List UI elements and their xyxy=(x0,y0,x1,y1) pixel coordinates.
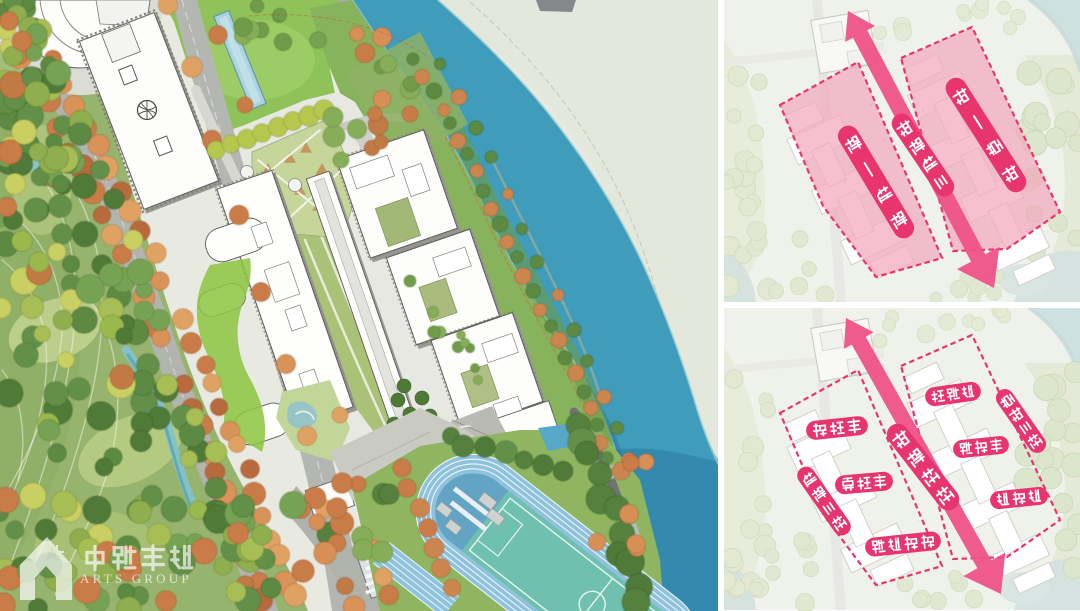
svg-text:ARTS GROUP: ARTS GROUP xyxy=(80,571,192,586)
